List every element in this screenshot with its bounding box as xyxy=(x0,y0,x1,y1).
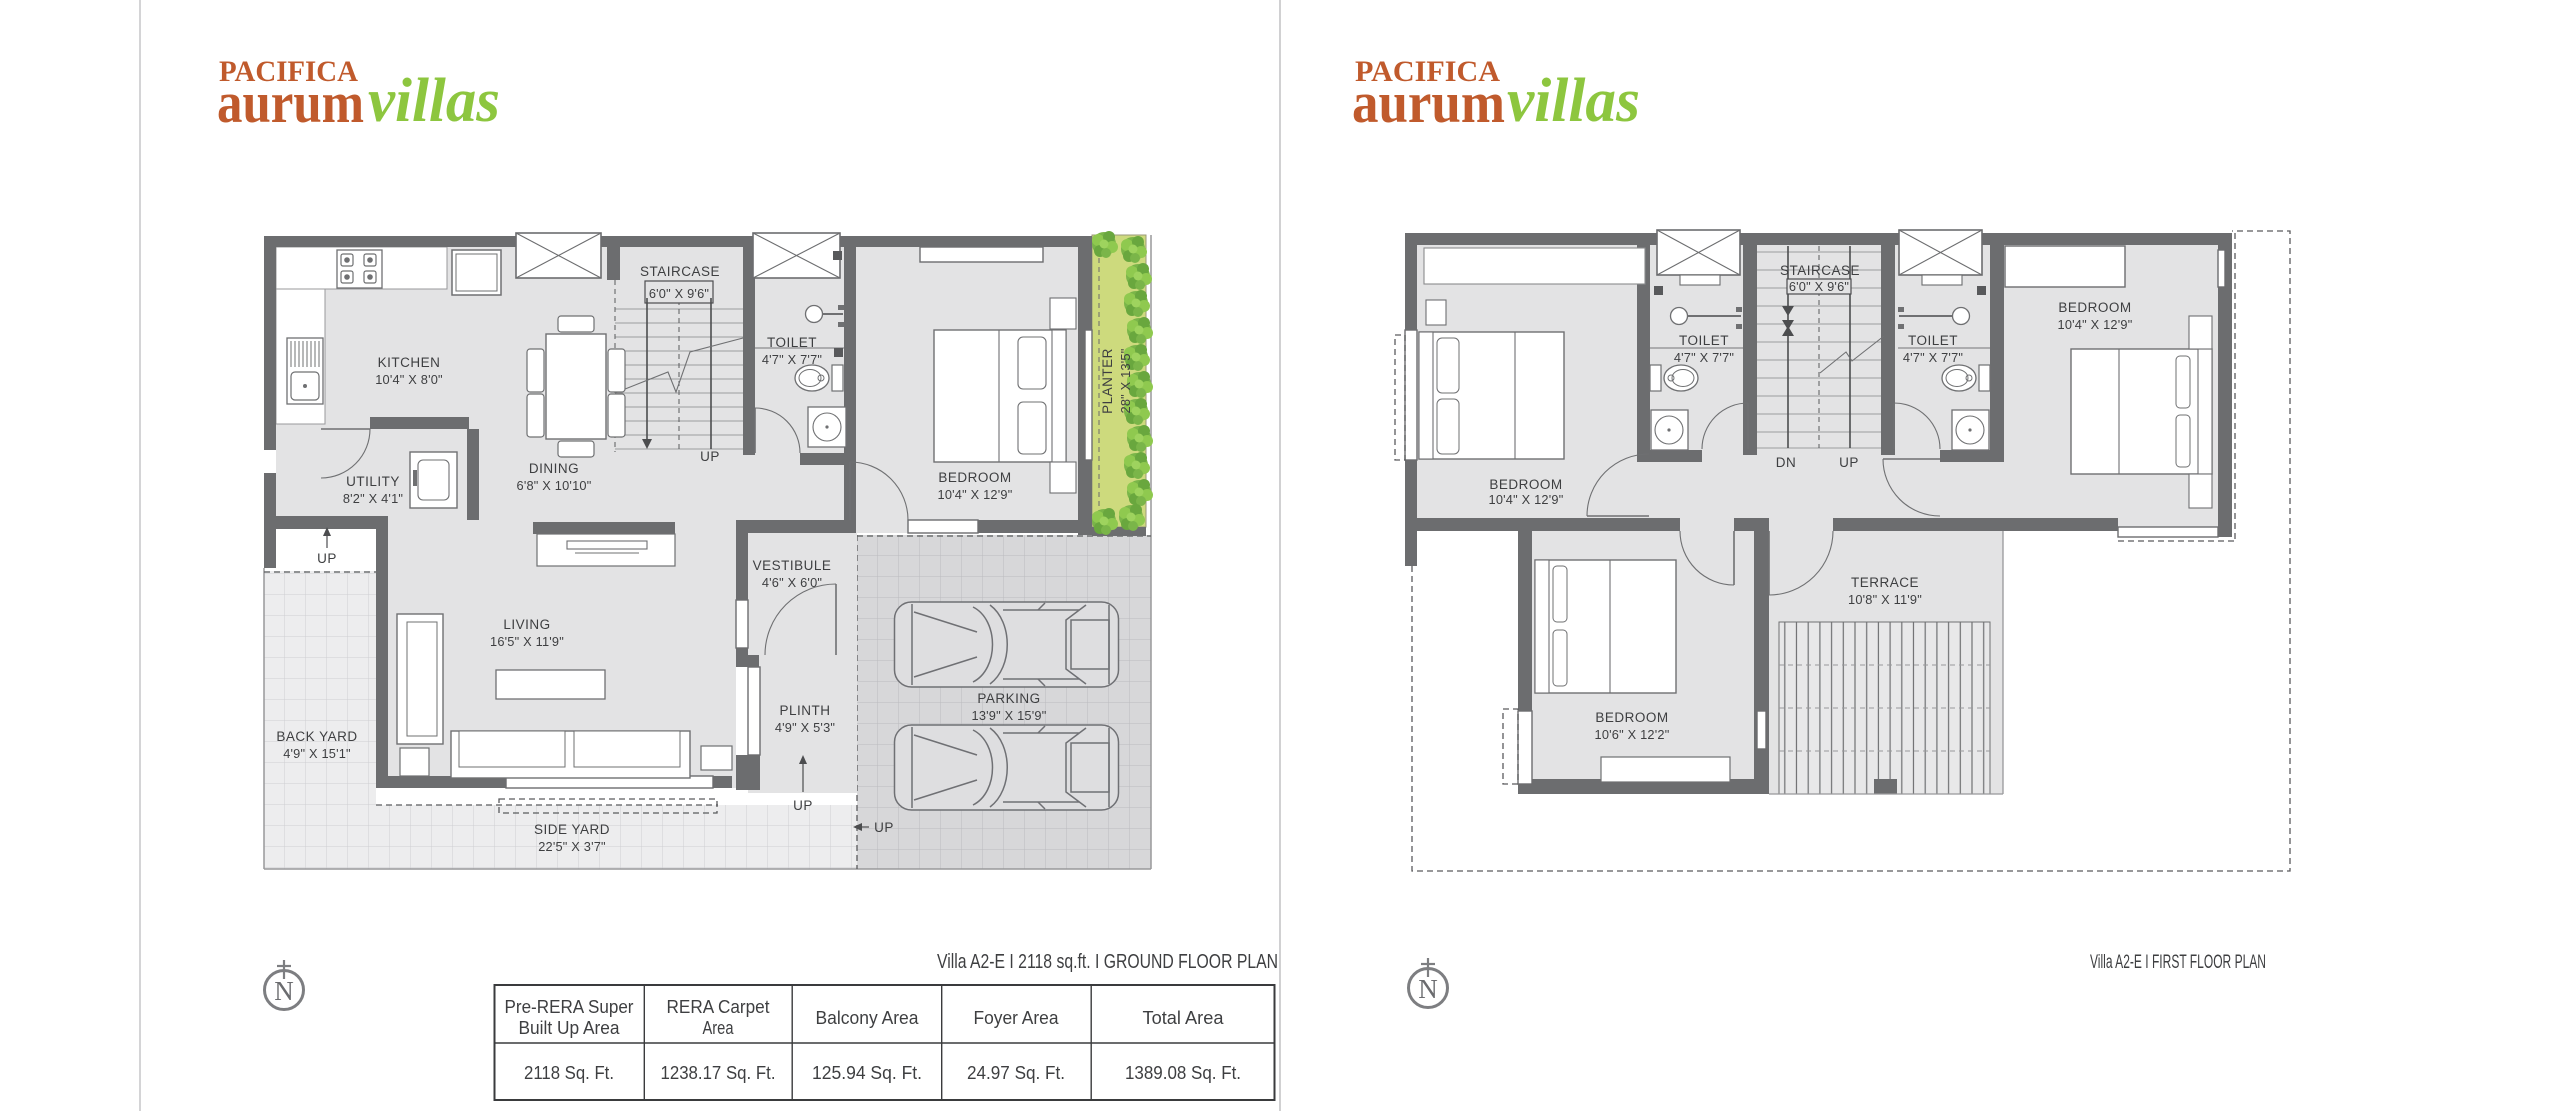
svg-text:6'0" X 9'6": 6'0" X 9'6" xyxy=(649,286,709,301)
svg-text:Area: Area xyxy=(703,1018,735,1038)
svg-text:Balcony Area: Balcony Area xyxy=(816,1008,920,1028)
svg-text:BACK YARD: BACK YARD xyxy=(276,729,357,744)
svg-text:24.97 Sq. Ft.: 24.97 Sq. Ft. xyxy=(967,1063,1065,1083)
svg-text:N: N xyxy=(274,976,294,1006)
svg-text:RERA Carpet: RERA Carpet xyxy=(667,997,770,1017)
svg-text:Pre-RERA Super: Pre-RERA Super xyxy=(505,997,634,1017)
svg-text:4'7" X 7'7": 4'7" X 7'7" xyxy=(1903,350,1963,365)
svg-text:13'9" X 15'9": 13'9" X 15'9" xyxy=(972,708,1047,723)
svg-text:Villa A2-E I FIRST FLOOR PLAN: Villa A2-E I FIRST FLOOR PLAN xyxy=(2090,952,2266,973)
svg-text:PLINTH: PLINTH xyxy=(779,703,830,718)
svg-text:TOILET: TOILET xyxy=(1679,333,1729,348)
svg-text:villas: villas xyxy=(1507,67,1640,135)
svg-text:SIDE YARD: SIDE YARD xyxy=(534,822,610,837)
svg-text:aurum: aurum xyxy=(1352,70,1505,135)
svg-text:Built Up Area: Built Up Area xyxy=(519,1018,621,1038)
svg-text:BEDROOM: BEDROOM xyxy=(2058,300,2131,315)
svg-text:KITCHEN: KITCHEN xyxy=(378,355,441,370)
svg-text:4'7" X 7'7": 4'7" X 7'7" xyxy=(1674,350,1734,365)
svg-text:10'4" X 12'9": 10'4" X 12'9" xyxy=(1489,492,1564,507)
svg-text:UP: UP xyxy=(874,820,894,835)
svg-text:10'8" X 11'9": 10'8" X 11'9" xyxy=(1848,592,1922,607)
svg-text:2118 Sq. Ft.: 2118 Sq. Ft. xyxy=(524,1063,614,1083)
svg-text:10'4" X 12'9": 10'4" X 12'9" xyxy=(2058,317,2133,332)
svg-text:LIVING: LIVING xyxy=(503,617,550,632)
svg-text:22'5" X 3'7": 22'5" X 3'7" xyxy=(538,839,606,854)
svg-text:BEDROOM: BEDROOM xyxy=(1595,710,1668,725)
svg-text:DN: DN xyxy=(1776,455,1797,470)
svg-text:BEDROOM: BEDROOM xyxy=(938,470,1011,485)
svg-text:DINING: DINING xyxy=(529,461,579,476)
svg-text:1238.17 Sq. Ft.: 1238.17 Sq. Ft. xyxy=(661,1063,776,1083)
svg-text:125.94 Sq. Ft.: 125.94 Sq. Ft. xyxy=(812,1063,922,1083)
svg-text:VESTIBULE: VESTIBULE xyxy=(753,558,832,573)
svg-text:4'6" X 6'0": 4'6" X 6'0" xyxy=(762,575,822,590)
svg-text:16'5" X 11'9": 16'5" X 11'9" xyxy=(490,634,564,649)
svg-text:1389.08 Sq. Ft.: 1389.08 Sq. Ft. xyxy=(1125,1063,1241,1083)
svg-text:PLANTER: PLANTER xyxy=(1100,348,1115,414)
svg-text:TOILET: TOILET xyxy=(1908,333,1958,348)
svg-text:STAIRCASE: STAIRCASE xyxy=(1780,263,1860,278)
svg-text:UP: UP xyxy=(317,551,337,566)
svg-text:4'9" X 5'3": 4'9" X 5'3" xyxy=(775,720,835,735)
svg-text:STAIRCASE: STAIRCASE xyxy=(640,264,720,279)
svg-text:6'8" X 10'10": 6'8" X 10'10" xyxy=(517,478,592,493)
svg-text:N: N xyxy=(1418,974,1438,1004)
svg-text:8'2" X 4'1": 8'2" X 4'1" xyxy=(343,491,403,506)
svg-text:10'6" X 12'2": 10'6" X 12'2" xyxy=(1595,727,1670,742)
svg-text:UTILITY: UTILITY xyxy=(346,474,400,489)
svg-text:BEDROOM: BEDROOM xyxy=(1489,477,1562,492)
svg-text:PARKING: PARKING xyxy=(977,691,1040,706)
svg-text:aurum: aurum xyxy=(217,70,364,135)
svg-text:TOILET: TOILET xyxy=(767,335,817,350)
svg-text:UP: UP xyxy=(793,798,813,813)
svg-text:28" X 13'5": 28" X 13'5" xyxy=(1118,349,1133,414)
svg-text:Foyer Area: Foyer Area xyxy=(974,1008,1060,1028)
svg-text:4'7" X 7'7": 4'7" X 7'7" xyxy=(762,352,822,367)
svg-text:villas: villas xyxy=(368,67,500,135)
svg-text:6'0" X 9'6": 6'0" X 9'6" xyxy=(1789,279,1849,294)
svg-text:UP: UP xyxy=(1839,455,1859,470)
svg-text:4'9" X 15'1": 4'9" X 15'1" xyxy=(283,746,351,761)
svg-text:Villa A2-E I 2118 sq.ft. I GRO: Villa A2-E I 2118 sq.ft. I GROUND FLOOR … xyxy=(937,951,1278,973)
svg-text:UP: UP xyxy=(700,449,720,464)
svg-text:TERRACE: TERRACE xyxy=(1851,575,1919,590)
svg-text:10'4" X 8'0": 10'4" X 8'0" xyxy=(375,372,443,387)
svg-text:Total Area: Total Area xyxy=(1143,1008,1225,1028)
svg-text:10'4" X 12'9": 10'4" X 12'9" xyxy=(938,487,1013,502)
